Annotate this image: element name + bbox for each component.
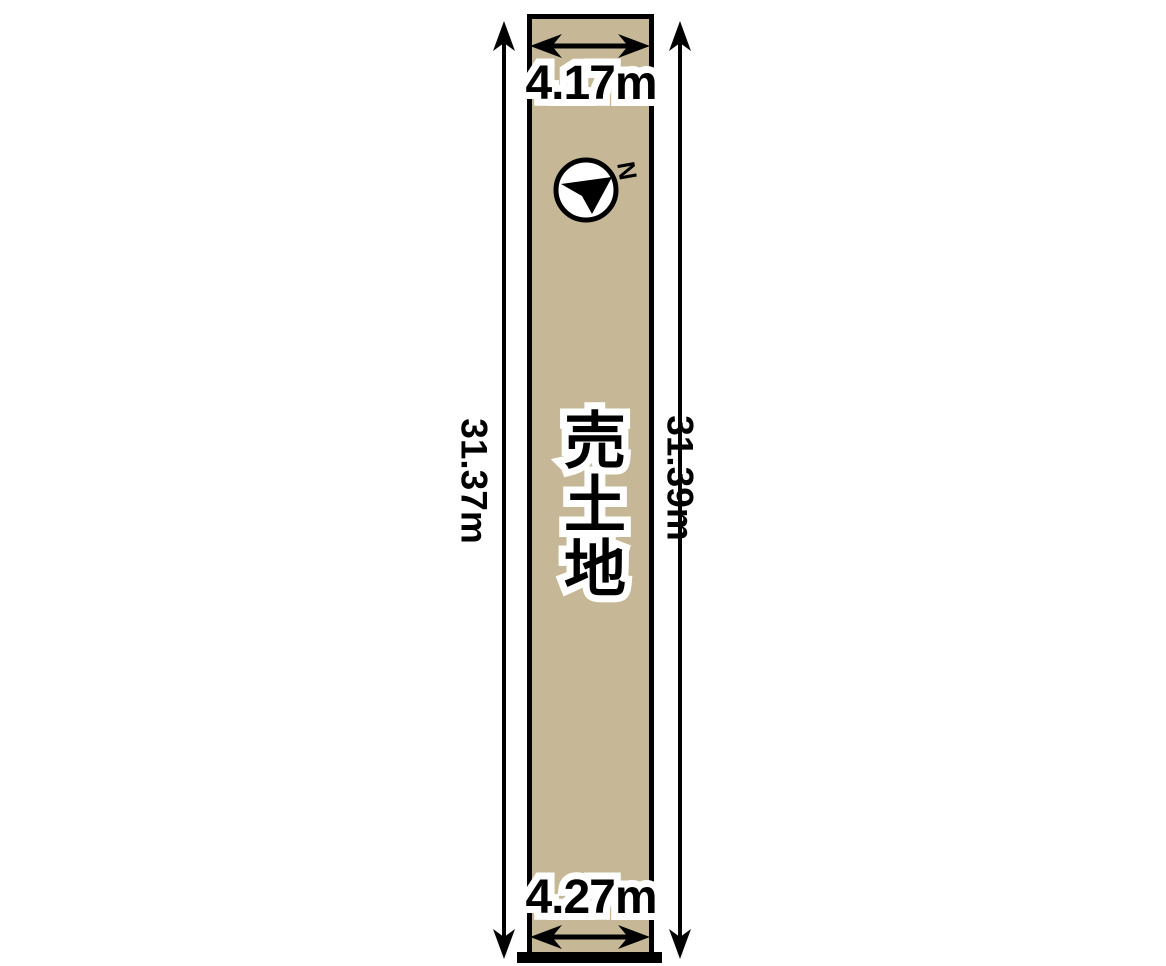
left-depth-label: 31.37m [456, 418, 493, 544]
parcel-name-text: 売土地 [554, 408, 623, 600]
right-depth-label: 31.39m [662, 415, 699, 541]
road-edge-bar [517, 952, 662, 963]
parcel-name-label: 売土地 売土地 [557, 408, 619, 600]
top-width-label: 4.17m 4.17m [525, 60, 656, 108]
bottom-width-label-text: 4.27m [525, 871, 656, 924]
land-plot-diagram: N 4.17m 4.17m 4.27m 4.27m 31.37m 31.39m … [0, 0, 1166, 966]
left-dimension-arrow [493, 21, 515, 959]
top-width-label-text: 4.17m [525, 57, 656, 110]
bottom-width-label: 4.27m 4.27m [525, 874, 656, 922]
compass-icon [556, 160, 616, 220]
